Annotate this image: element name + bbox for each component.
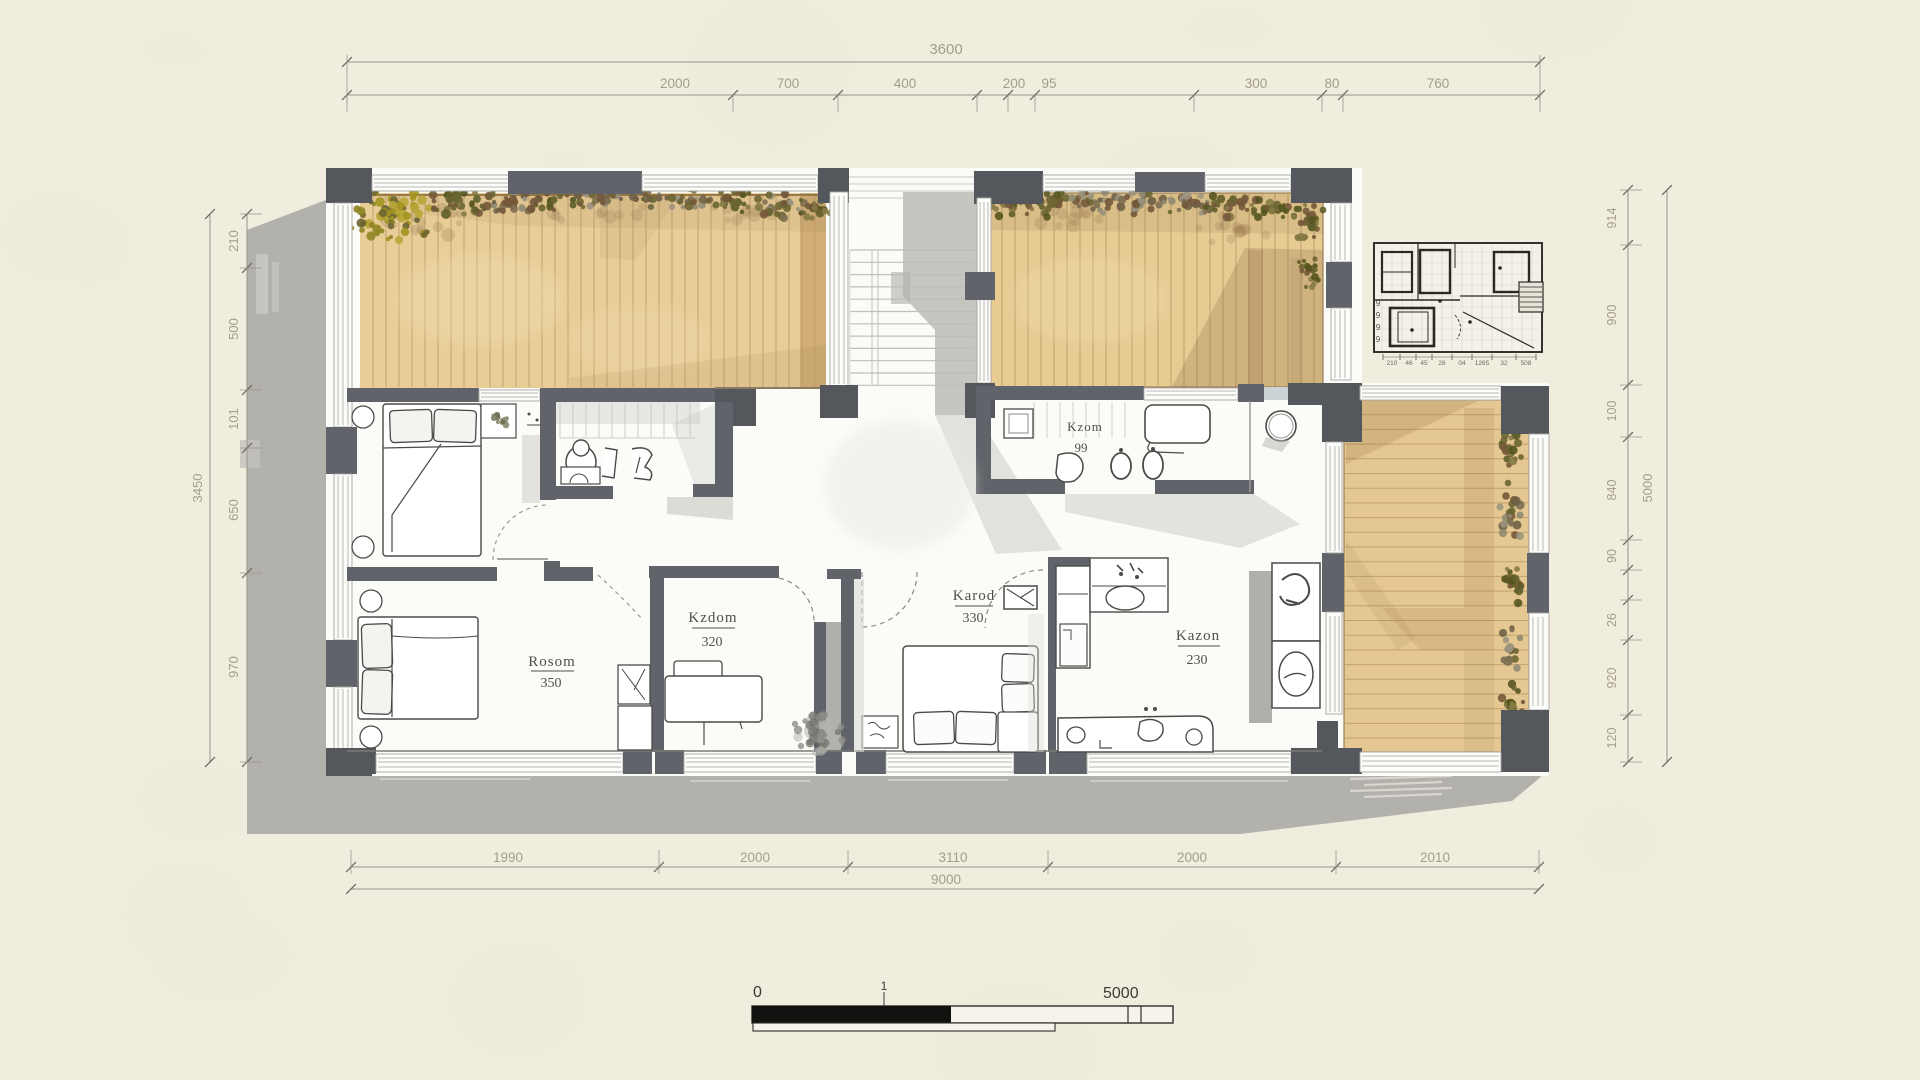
svg-text:3110: 3110 [938, 850, 967, 865]
svg-text:9: 9 [1376, 299, 1381, 308]
svg-text:1990: 1990 [493, 850, 523, 865]
svg-text:99: 99 [1075, 440, 1088, 455]
svg-text:500: 500 [226, 318, 241, 340]
svg-text:Kzdom: Kzdom [688, 610, 737, 626]
svg-text:760: 760 [1427, 76, 1450, 91]
svg-text:2000: 2000 [660, 76, 690, 91]
svg-text:320: 320 [702, 635, 723, 650]
svg-text:9000: 9000 [931, 872, 961, 887]
svg-text:45: 45 [1420, 360, 1428, 367]
svg-text:04: 04 [1458, 360, 1466, 367]
svg-text:95: 95 [1041, 76, 1056, 91]
svg-text:1265: 1265 [1475, 360, 1490, 367]
svg-text:120: 120 [1605, 728, 1619, 749]
svg-text:90: 90 [1605, 549, 1619, 563]
svg-text:Karod: Karod [953, 588, 996, 604]
svg-text:3600: 3600 [929, 41, 962, 58]
svg-text:2010: 2010 [1420, 850, 1450, 865]
svg-text:101: 101 [226, 408, 241, 430]
svg-text:970: 970 [226, 656, 241, 678]
svg-text:350: 350 [541, 676, 562, 691]
svg-text:100: 100 [1605, 401, 1619, 422]
svg-text:2000: 2000 [1177, 850, 1207, 865]
svg-text:9: 9 [1376, 311, 1381, 320]
svg-text:1: 1 [881, 979, 888, 993]
svg-text:920: 920 [1605, 668, 1619, 689]
svg-text:650: 650 [226, 499, 241, 521]
svg-text:330: 330 [963, 611, 984, 626]
svg-text:26: 26 [1605, 613, 1619, 627]
svg-text:Kzom: Kzom [1067, 419, 1103, 434]
svg-text:80: 80 [1324, 76, 1339, 91]
svg-text:200: 200 [1003, 76, 1026, 91]
svg-text:900: 900 [1605, 305, 1619, 326]
svg-text:3450: 3450 [190, 474, 205, 503]
svg-text:46: 46 [1405, 360, 1413, 367]
svg-text:28: 28 [1438, 360, 1446, 367]
svg-text:32: 32 [1500, 360, 1508, 367]
svg-text:400: 400 [894, 76, 917, 91]
svg-text:5000: 5000 [1103, 985, 1139, 1002]
svg-text:508: 508 [1521, 360, 1532, 367]
svg-text:230: 230 [1187, 653, 1208, 668]
svg-text:5000: 5000 [1640, 474, 1655, 503]
svg-text:210: 210 [1387, 360, 1398, 367]
svg-text:Rosom: Rosom [528, 654, 576, 670]
svg-text:300: 300 [1245, 76, 1268, 91]
svg-text:9: 9 [1376, 323, 1381, 332]
svg-text:2000: 2000 [740, 850, 770, 865]
svg-text:9: 9 [1376, 335, 1381, 344]
svg-text:914: 914 [1605, 208, 1619, 229]
svg-text:0: 0 [753, 984, 762, 1001]
svg-text:210: 210 [226, 230, 241, 252]
svg-text:700: 700 [777, 76, 800, 91]
svg-text:Kazon: Kazon [1176, 628, 1220, 644]
svg-text:840: 840 [1605, 480, 1619, 501]
